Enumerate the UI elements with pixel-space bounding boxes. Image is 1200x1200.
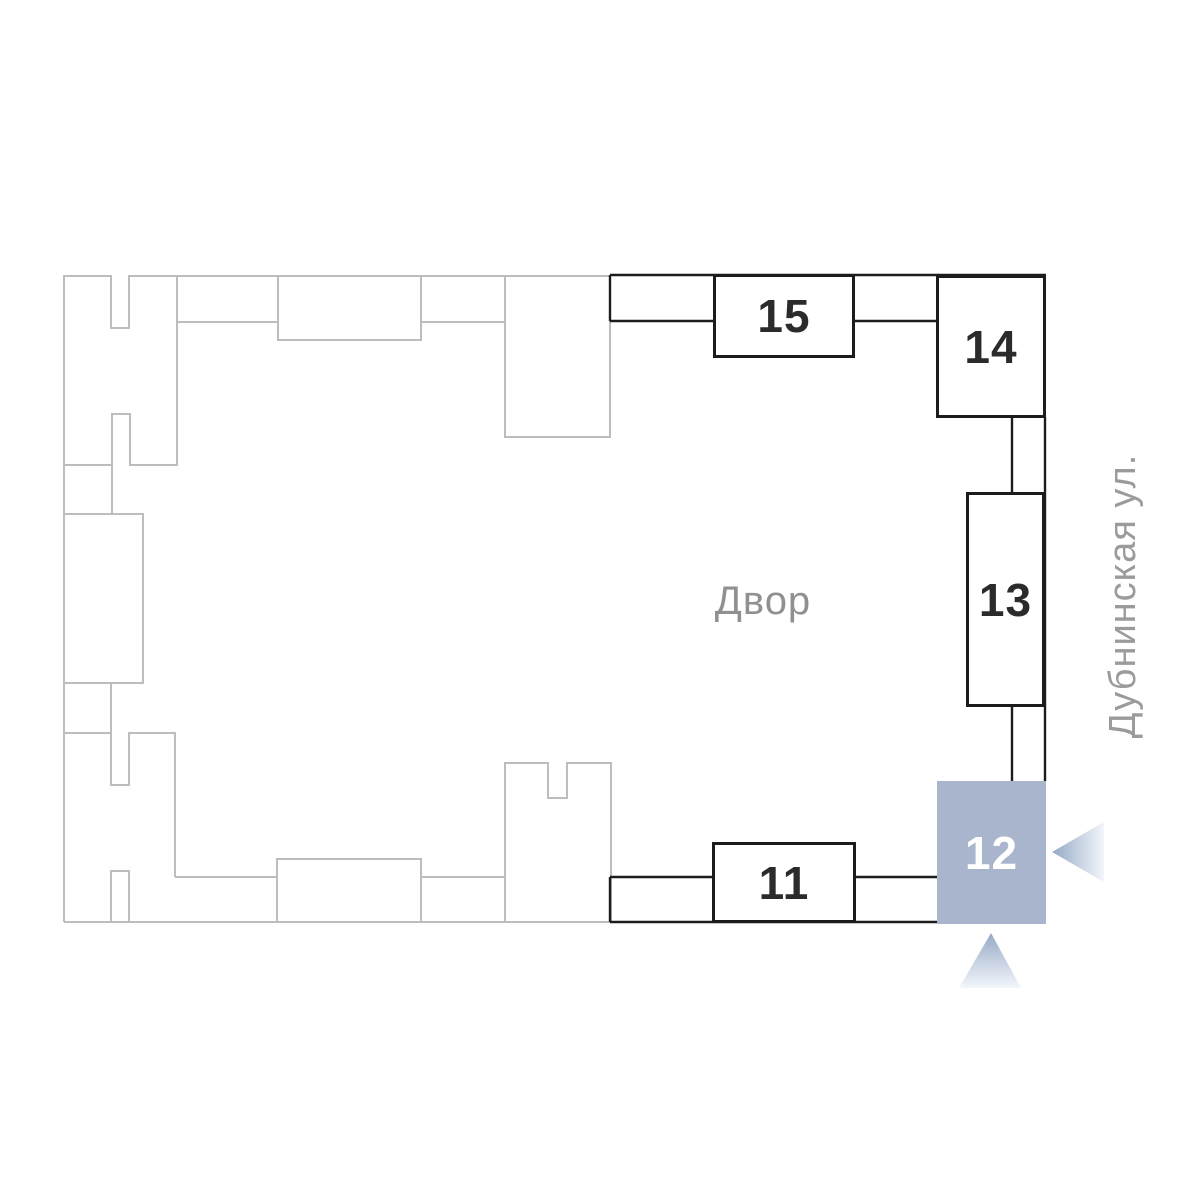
building-number: 13 <box>979 573 1032 627</box>
courtyard-label: Двор <box>663 579 863 624</box>
building-number: 12 <box>965 826 1018 880</box>
inactive-buildings-top-outline <box>177 276 610 437</box>
building-number: 15 <box>757 289 810 343</box>
site-plan: 15 14 13 12 11 Двор Дубнинская ул. <box>0 0 1200 1200</box>
building-number: 14 <box>964 320 1017 374</box>
building-block-13[interactable]: 13 <box>966 492 1045 707</box>
selected-building-arrow-left-icon <box>1052 822 1104 882</box>
inactive-buildings-bottom-outline <box>64 763 611 922</box>
inactive-buildings-left-outline <box>64 276 177 922</box>
selected-building-arrow-up-icon <box>959 933 1021 988</box>
building-number: 11 <box>759 856 810 910</box>
street-label: Дубнинская ул. <box>1102 421 1144 771</box>
building-block-15[interactable]: 15 <box>713 274 855 358</box>
building-block-11[interactable]: 11 <box>712 842 856 923</box>
building-block-14[interactable]: 14 <box>936 275 1046 418</box>
building-block-12-selected[interactable]: 12 <box>937 781 1046 924</box>
